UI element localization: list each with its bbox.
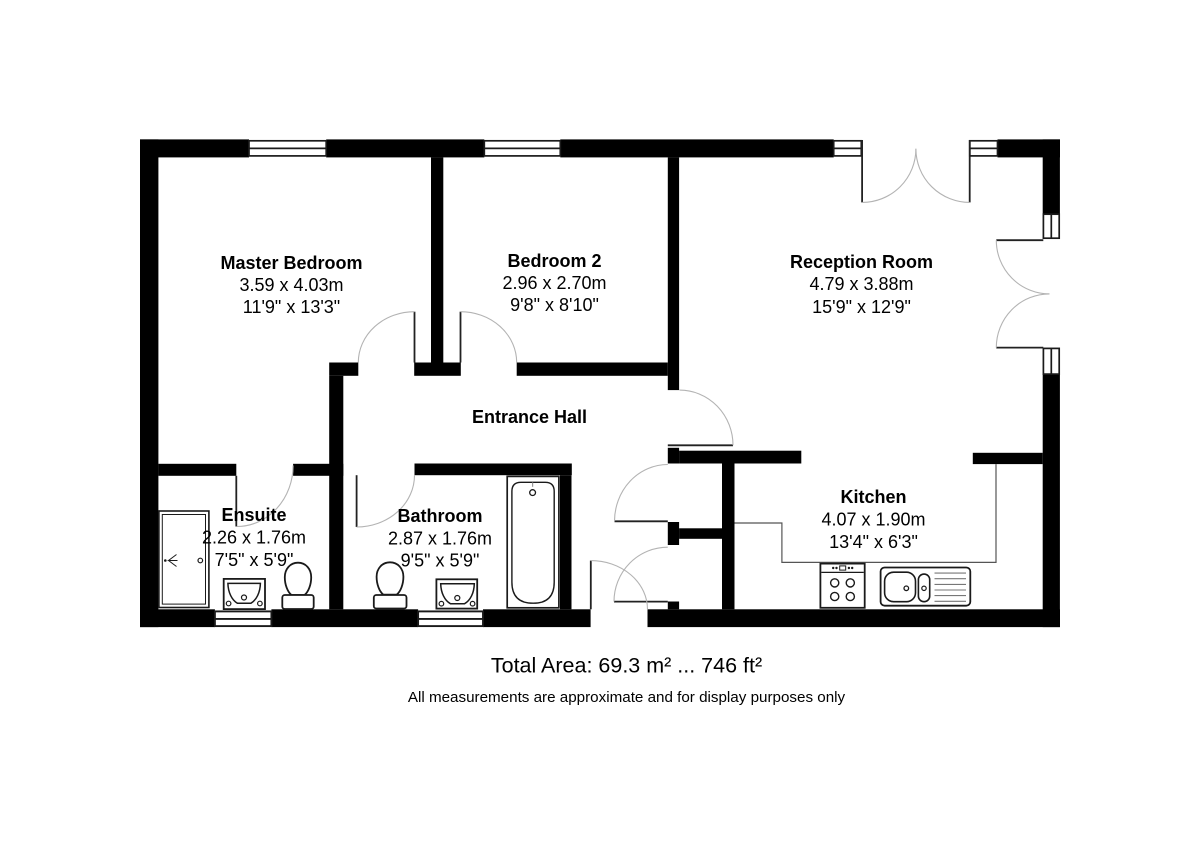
svg-text:Bedroom 2: Bedroom 2 (507, 251, 601, 271)
svg-text:11'9" x 13'3": 11'9" x 13'3" (243, 297, 340, 317)
svg-text:Ensuite: Ensuite (221, 505, 286, 525)
svg-text:3.59 x 4.03m: 3.59 x 4.03m (239, 275, 343, 295)
svg-text:4.07 x 1.90m: 4.07 x 1.90m (821, 510, 925, 530)
svg-text:9'5" x 5'9": 9'5" x 5'9" (401, 550, 480, 570)
svg-text:Kitchen: Kitchen (840, 487, 906, 507)
svg-text:2.87 x 1.76m: 2.87 x 1.76m (388, 528, 492, 548)
svg-text:Reception Room: Reception Room (790, 252, 933, 272)
svg-text:9'8" x 8'10": 9'8" x 8'10" (510, 295, 599, 315)
svg-text:4.79 x 3.88m: 4.79 x 3.88m (809, 274, 913, 294)
svg-text:15'9" x 12'9": 15'9" x 12'9" (812, 297, 911, 317)
svg-text:2.26 x 1.76m: 2.26 x 1.76m (202, 528, 306, 548)
svg-text:13'4" x 6'3": 13'4" x 6'3" (829, 532, 918, 552)
svg-text:Entrance Hall: Entrance Hall (472, 407, 587, 427)
svg-text:2.96 x 2.70m: 2.96 x 2.70m (502, 273, 606, 293)
svg-text:Total Area: 69.3 m² ... 746 ft: Total Area: 69.3 m² ... 746 ft² (491, 654, 762, 678)
svg-text:7'5" x 5'9": 7'5" x 5'9" (215, 550, 294, 570)
svg-text:All measurements are approxima: All measurements are approximate and for… (408, 689, 846, 706)
svg-text:Master Bedroom: Master Bedroom (220, 253, 362, 273)
svg-text:Bathroom: Bathroom (398, 506, 483, 526)
